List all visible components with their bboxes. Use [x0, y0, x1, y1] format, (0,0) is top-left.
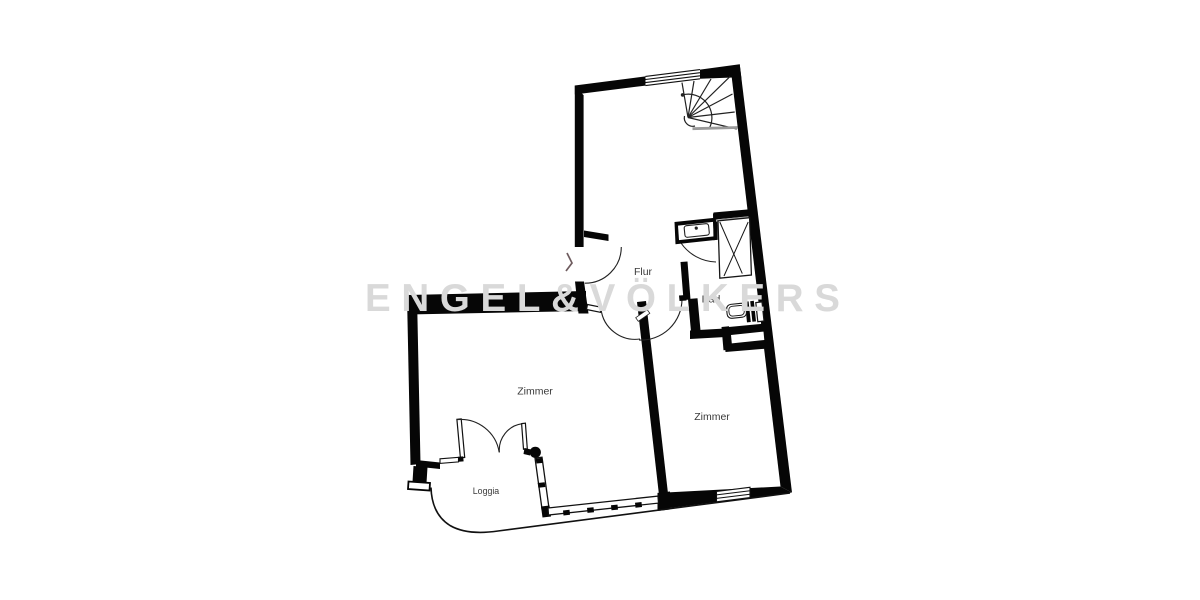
svg-text:Zimmer: Zimmer: [517, 386, 553, 398]
svg-text:ENGEL&VÖLKERS: ENGEL&VÖLKERS: [365, 277, 851, 320]
svg-text:Loggia: Loggia: [473, 486, 500, 496]
svg-text:Zimmer: Zimmer: [694, 411, 730, 423]
